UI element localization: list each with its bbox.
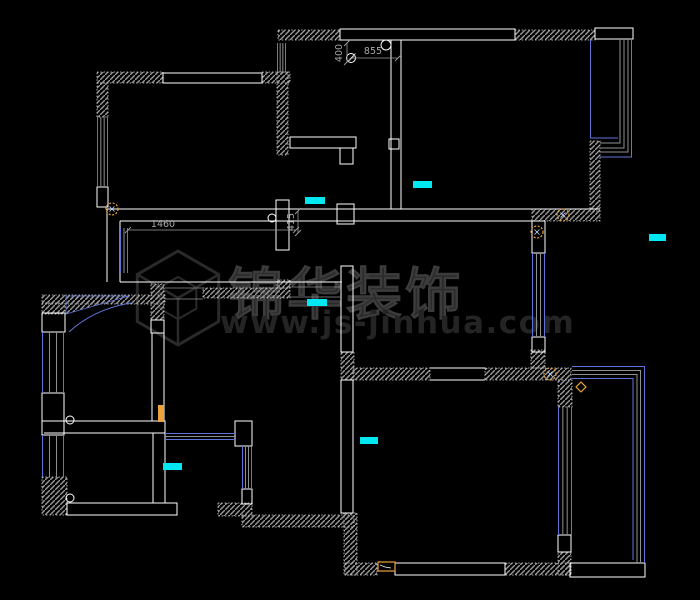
bay-window-line: [600, 39, 632, 157]
bay-windows-layer: [572, 39, 645, 563]
wall-outline-segment: [290, 137, 356, 148]
wall-hatched-segment: [278, 30, 340, 40]
bay-window-line: [572, 375, 637, 564]
wall-outline-segment: [395, 563, 505, 575]
circle-symbol: [66, 416, 74, 424]
diamond-symbol: [576, 382, 586, 392]
threshold-symbol: [378, 562, 395, 571]
wall-hatched-segment: [515, 30, 595, 40]
wall-outline-segment: [42, 393, 64, 421]
outlet-symbol: [531, 226, 543, 238]
cyan-marker: [413, 181, 432, 188]
cyan-marker: [649, 234, 666, 241]
wall-hatched-segment: [531, 350, 545, 368]
cyan-marker: [307, 299, 327, 306]
wall-outline-segment: [97, 187, 108, 207]
window: [98, 117, 108, 187]
dimension-label-415: 415: [286, 213, 297, 231]
wall-hatched-segment: [558, 380, 572, 407]
wall-outline-segment: [42, 313, 65, 332]
circle-symbol: [66, 494, 74, 502]
wall-hatched-segment: [97, 83, 108, 117]
wall-hatched-segment: [277, 72, 288, 155]
cyan-marker: [360, 437, 378, 444]
wall-outline-segment: [67, 503, 177, 515]
dimension-label-1460: 1460: [151, 219, 175, 230]
cyan-marker: [163, 463, 182, 470]
window: [43, 332, 64, 393]
floor-plan-page: 锦华装饰 www.js-jinhua.com 1460 415 855 400: [0, 0, 700, 600]
circle-symbol: [381, 40, 391, 50]
wall-outline-segment: [558, 535, 571, 552]
dimension-label-400: 400: [334, 44, 345, 62]
wall-outline-segment: [340, 29, 515, 40]
bay-window-line: [600, 39, 620, 143]
wall-hatched-segment: [485, 368, 571, 380]
wall-hatched-segment: [42, 477, 67, 515]
wall-hatched-segment: [341, 352, 354, 380]
wall-hatched-segment: [42, 303, 65, 314]
bay-window-line: [572, 367, 645, 564]
wall-hatched-segment: [97, 72, 163, 83]
wall-hatched-segment: [590, 141, 600, 211]
bay-window-line: [572, 379, 633, 561]
wall-hatched-segment: [353, 368, 430, 380]
watermark: 锦华装饰 www.js-jinhua.com: [137, 251, 575, 345]
bay-window-line: [572, 371, 641, 564]
wall-outline-segment: [341, 380, 353, 513]
wall-outline-segment: [242, 489, 252, 504]
wall-hatched-segment: [242, 515, 354, 527]
watermark-url-text: www.js-jinhua.com: [220, 305, 575, 341]
wall-hatched-segment: [345, 563, 377, 575]
wall-outline-segment: [340, 148, 353, 164]
window: [243, 446, 252, 489]
window: [43, 435, 64, 477]
window: [121, 228, 128, 273]
window: [278, 43, 286, 72]
dimension-label-855: 855: [364, 46, 382, 57]
wall-outline-segment: [163, 73, 262, 83]
wall-outline-segment: [595, 28, 633, 39]
door-leaf-symbol: [158, 405, 164, 422]
dimensions-layer: 1460 415 855 400: [125, 40, 401, 236]
wall-hatched-segment: [151, 284, 164, 320]
wall-outline-segment: [64, 421, 165, 433]
floor-plan-canvas: 锦华装饰 www.js-jinhua.com 1460 415 855 400: [0, 0, 700, 600]
window: [559, 407, 572, 535]
wall-hatched-segment: [505, 563, 571, 575]
wall-outline-segment: [570, 563, 645, 577]
bay-window-line: [591, 40, 619, 138]
wall-hatched-segment: [203, 288, 290, 298]
wall-hatched-segment: [218, 503, 252, 516]
wall-outline-segment: [235, 421, 252, 446]
window: [165, 434, 236, 440]
cyan-marker: [305, 197, 325, 204]
